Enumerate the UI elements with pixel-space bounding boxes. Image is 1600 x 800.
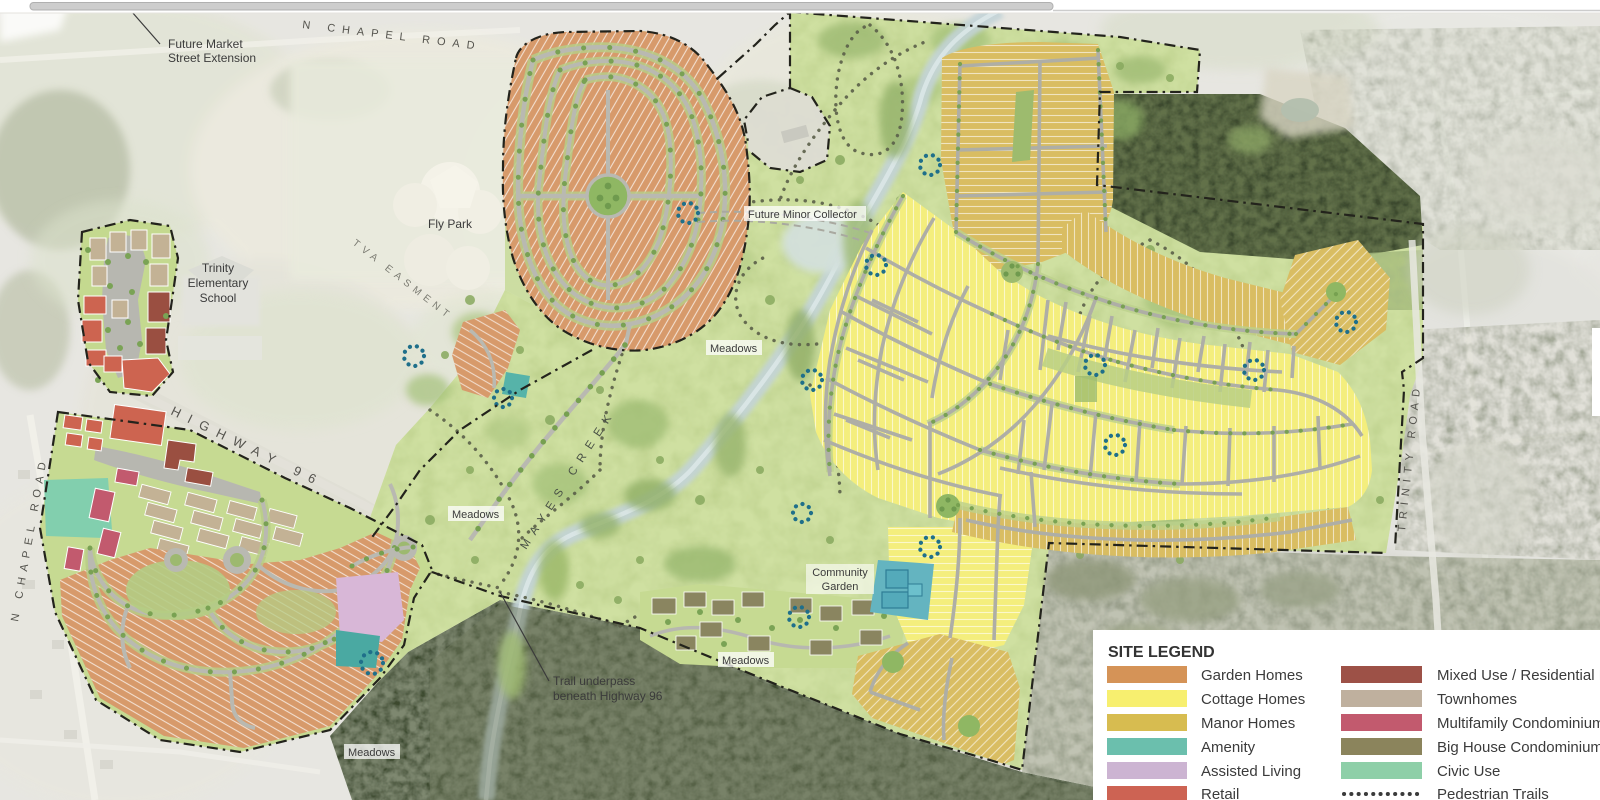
- svg-text:Garden: Garden: [822, 581, 859, 593]
- svg-text:Elementary: Elementary: [188, 276, 249, 290]
- svg-text:Garden Homes: Garden Homes: [1201, 667, 1303, 684]
- svg-text:Future Minor Collector: Future Minor Collector: [748, 209, 857, 221]
- svg-text:Mixed Use / Residential Lo: Mixed Use / Residential Lo: [1437, 667, 1600, 684]
- svg-text:Amenity: Amenity: [1201, 739, 1256, 756]
- svg-text:Cottage Homes: Cottage Homes: [1201, 691, 1305, 708]
- svg-text:Trail underpass: Trail underpass: [553, 674, 635, 688]
- svg-text:Manor Homes: Manor Homes: [1201, 715, 1295, 732]
- svg-text:beneath Highway 96: beneath Highway 96: [553, 689, 663, 703]
- svg-text:Big House Condominiums: Big House Condominiums: [1437, 739, 1600, 756]
- svg-text:Meadows: Meadows: [348, 747, 396, 759]
- svg-text:Meadows: Meadows: [710, 343, 758, 355]
- svg-text:Meadows: Meadows: [722, 655, 770, 667]
- svg-text:Street Extension: Street Extension: [168, 51, 256, 65]
- svg-text:SITE LEGEND: SITE LEGEND: [1108, 644, 1215, 661]
- svg-text:Civic Use: Civic Use: [1437, 763, 1500, 780]
- svg-text:Assisted Living: Assisted Living: [1201, 763, 1301, 780]
- svg-text:Multifamily Condominiums: Multifamily Condominiums: [1437, 715, 1600, 732]
- svg-text:Future Market: Future Market: [168, 37, 243, 51]
- svg-text:Retail: Retail: [1201, 786, 1239, 800]
- svg-text:School: School: [200, 291, 237, 305]
- svg-text:Community: Community: [812, 567, 868, 579]
- svg-text:Meadows: Meadows: [452, 509, 500, 521]
- svg-text:Fly Park: Fly Park: [428, 217, 473, 231]
- svg-text:Townhomes: Townhomes: [1437, 691, 1517, 708]
- svg-text:Trinity: Trinity: [202, 261, 234, 275]
- svg-text:Pedestrian Trails: Pedestrian Trails: [1437, 786, 1549, 800]
